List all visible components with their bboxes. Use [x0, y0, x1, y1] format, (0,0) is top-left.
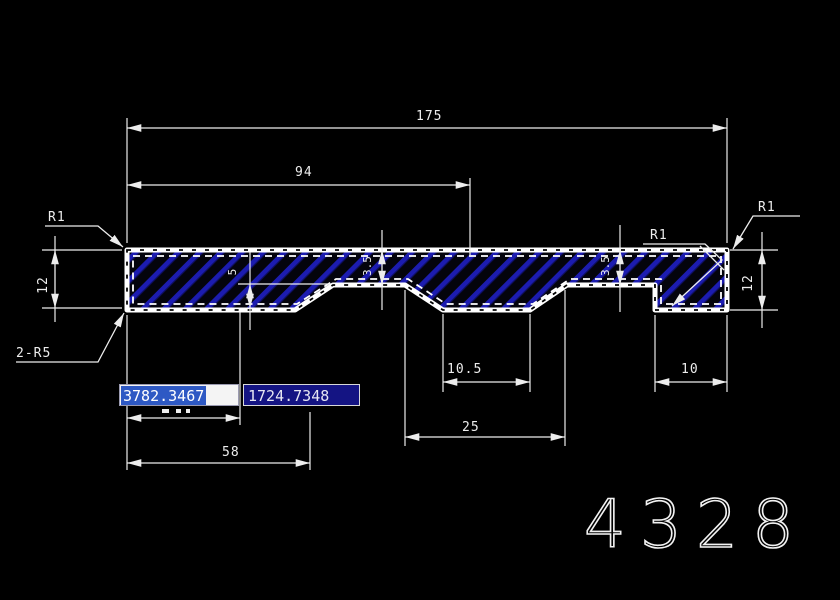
- dim-notch-bottom: 25: [462, 420, 480, 435]
- part-outline: [127, 250, 727, 310]
- dim-left-segment: 58: [222, 445, 240, 460]
- dim-left-height: 12: [36, 276, 51, 294]
- dim-notch-top: 10.5: [447, 362, 482, 377]
- part-cross-section[interactable]: [127, 250, 727, 310]
- coord-x-input[interactable]: 3782.3467: [119, 384, 239, 406]
- leader-r1-left: [45, 226, 123, 247]
- label-r1-right: R1: [758, 200, 776, 215]
- hidden-dim-text-remnant: [162, 409, 190, 413]
- coord-x-value: 3782.3467: [121, 386, 206, 406]
- dim-tab-width: 10: [681, 362, 699, 377]
- dim-web-right: 3.5: [599, 256, 612, 276]
- label-corner-note: 2-R5: [16, 346, 51, 361]
- dim-upper-length: 94: [295, 165, 313, 180]
- coord-y-value: 1724.7348: [248, 387, 329, 405]
- sheet-number: 4328: [584, 486, 808, 563]
- dim-web-mid: 3.5: [361, 256, 374, 276]
- label-r1-mid: R1: [650, 228, 668, 243]
- dim-total-length: 175: [416, 109, 442, 124]
- cad-viewport[interactable]: 175 94 12 5 3.5 3.5 12 10.5 25 10 58 R1 …: [0, 0, 840, 600]
- leader-r1-right: [733, 216, 800, 249]
- dim-step-depth: 5: [226, 269, 239, 276]
- label-r1-left: R1: [48, 210, 66, 225]
- coord-y-input[interactable]: 1724.7348: [243, 384, 360, 406]
- dim-right-height: 12: [741, 274, 756, 292]
